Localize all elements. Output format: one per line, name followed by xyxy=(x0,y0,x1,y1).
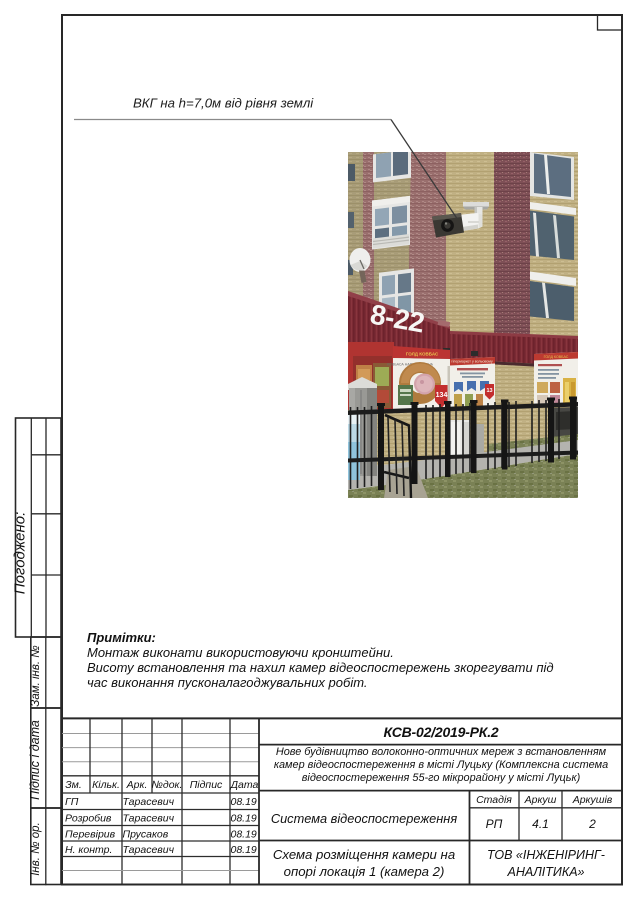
svg-text:Тарасевич: Тарасевич xyxy=(123,844,175,856)
svg-text:Тарасевич: Тарасевич xyxy=(123,796,175,808)
svg-text:Дата: Дата xyxy=(230,779,259,791)
svg-text:РП: РП xyxy=(486,817,503,831)
svg-text:Прусаков: Прусаков xyxy=(123,829,169,841)
svg-text:Перевірив: Перевірив xyxy=(65,829,116,841)
svg-text:ГОЛД КОВБАС: ГОЛД КОВБАС xyxy=(406,352,439,357)
svg-text:13: 13 xyxy=(486,388,492,394)
svg-text:Система відеоспостереження: Система відеоспостереження xyxy=(271,811,457,826)
svg-text:Висоту встановлення та нахил к: Висоту встановлення та нахил камер відео… xyxy=(87,660,554,675)
svg-text:час виконання пусконалагоджува: час виконання пусконалагоджувальних робі… xyxy=(87,675,368,690)
svg-text:ТОВ «ІНЖЕНІРИНГ-: ТОВ «ІНЖЕНІРИНГ- xyxy=(487,848,605,862)
svg-text:Примітки:: Примітки: xyxy=(87,630,156,645)
svg-text:08.19: 08.19 xyxy=(231,829,257,841)
svg-text:Арк.: Арк. xyxy=(126,779,148,791)
svg-text:Стадія: Стадія xyxy=(476,794,512,806)
svg-text:камер відеоспостереження в міс: камер відеоспостереження в місті Луцьку … xyxy=(274,759,608,771)
svg-text:2: 2 xyxy=(588,817,596,831)
svg-text:Розробив: Розробив xyxy=(65,813,112,825)
svg-text:Монтаж виконати використовуючи: Монтаж виконати використовуючи кронштейн… xyxy=(87,645,394,660)
svg-text:відеоспостереження 55-го мікро: відеоспостереження 55-го мікрорайону у м… xyxy=(302,772,581,784)
svg-text:08.19: 08.19 xyxy=(231,796,257,808)
svg-text:гіпермаркет у вольовому: гіпермаркет у вольовому xyxy=(451,360,493,364)
svg-text:Зм.: Зм. xyxy=(65,779,82,791)
svg-text:Зам. інв. №: Зам. інв. № xyxy=(30,645,42,707)
svg-text:08.19: 08.19 xyxy=(231,813,257,825)
svg-text:08.19: 08.19 xyxy=(231,844,257,856)
svg-text:Н. контр.: Н. контр. xyxy=(65,844,112,856)
svg-text:Підпис: Підпис xyxy=(190,779,223,791)
svg-text:Погоджено:: Погоджено: xyxy=(12,512,29,595)
svg-text:КСВ-02/2019-РК.2: КСВ-02/2019-РК.2 xyxy=(384,724,499,740)
svg-text:Підпис і дата: Підпис і дата xyxy=(28,720,42,800)
svg-text:Інв. № ор.: Інв. № ор. xyxy=(30,822,42,876)
svg-text:ГП: ГП xyxy=(65,796,79,808)
svg-text:опорі локація 1 (камера 2): опорі локація 1 (камера 2) xyxy=(284,864,445,879)
svg-text:Аркушів: Аркушів xyxy=(572,794,613,806)
svg-text:ВКГ на h=7,0м від рівня землі: ВКГ на h=7,0м від рівня землі xyxy=(133,96,314,111)
svg-text:Аркуш: Аркуш xyxy=(524,794,557,806)
svg-text:АНАЛІТИКА»: АНАЛІТИКА» xyxy=(507,865,585,879)
svg-text:Схема розміщення камери на: Схема розміщення камери на xyxy=(273,847,455,862)
svg-text:ГОЛД КОВБАС: ГОЛД КОВБАС xyxy=(544,355,569,359)
svg-text:4.1: 4.1 xyxy=(532,817,549,831)
svg-text:Кільк.: Кільк. xyxy=(92,779,120,791)
svg-text:134: 134 xyxy=(436,392,448,399)
svg-text:№док.: №док. xyxy=(152,779,183,791)
svg-text:Тарасевич: Тарасевич xyxy=(123,813,175,825)
svg-text:Нове будівництво волоконно-опт: Нове будівництво волоконно-оптичних мере… xyxy=(276,746,607,758)
